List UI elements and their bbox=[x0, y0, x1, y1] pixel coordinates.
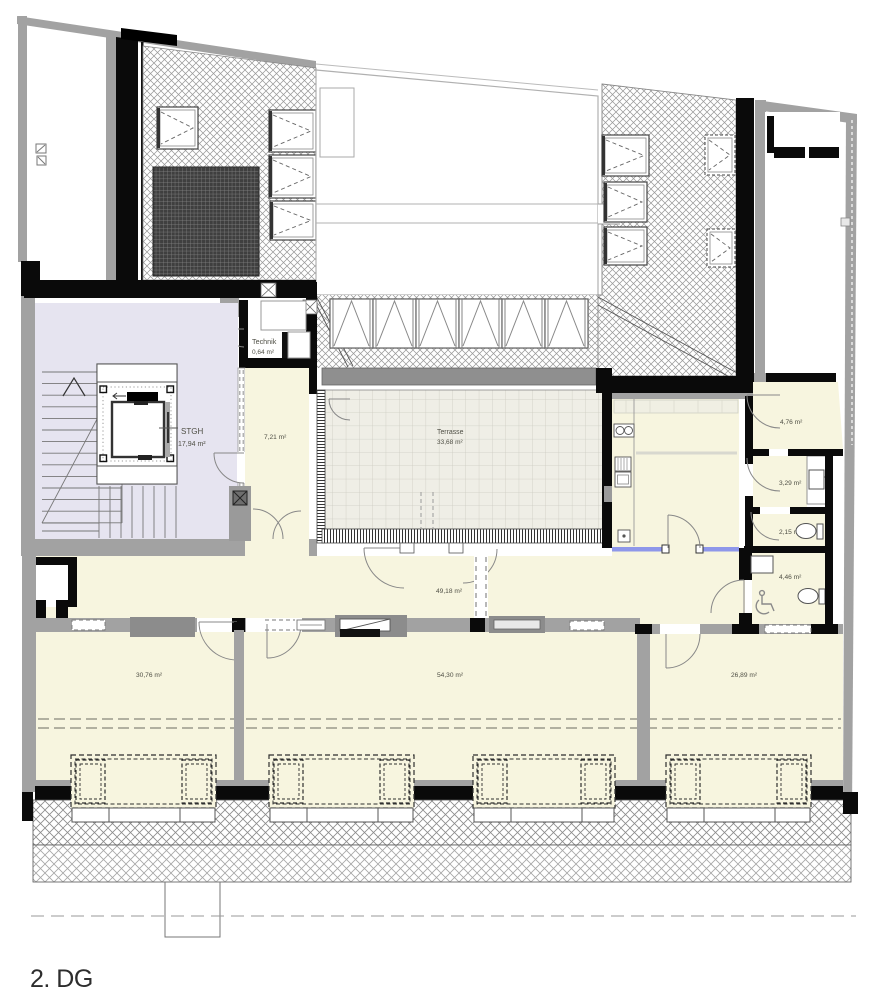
svg-text:33,68 m²: 33,68 m² bbox=[437, 439, 463, 446]
svg-text:Terrasse: Terrasse bbox=[437, 429, 464, 436]
svg-text:49,18 m²: 49,18 m² bbox=[436, 588, 463, 595]
svg-text:3,29 m²: 3,29 m² bbox=[779, 480, 802, 487]
svg-text:0,64 m²: 0,64 m² bbox=[252, 349, 275, 356]
svg-text:4,46 m²: 4,46 m² bbox=[779, 574, 802, 581]
svg-text:17,94 m²: 17,94 m² bbox=[178, 441, 206, 448]
svg-text:2. DG: 2. DG bbox=[30, 965, 93, 993]
svg-text:54,30 m²: 54,30 m² bbox=[437, 672, 464, 679]
svg-text:26,89 m²: 26,89 m² bbox=[731, 672, 758, 679]
svg-text:Technik: Technik bbox=[252, 337, 277, 346]
svg-text:STGH: STGH bbox=[181, 427, 203, 436]
svg-text:30,76 m²: 30,76 m² bbox=[136, 672, 163, 679]
svg-text:4,76 m²: 4,76 m² bbox=[780, 419, 803, 426]
svg-text:7,21 m²: 7,21 m² bbox=[264, 434, 287, 441]
